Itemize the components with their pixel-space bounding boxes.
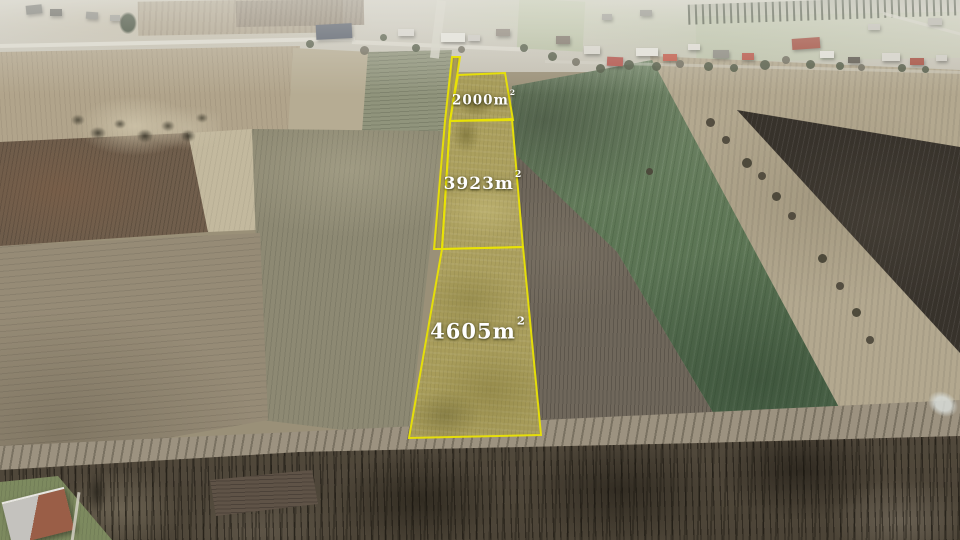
- parcel-3923-label: 3923m2: [444, 174, 523, 194]
- parcel-4605-label: 4605m2: [430, 319, 526, 344]
- area-unit: m: [494, 92, 509, 108]
- area-value: 4605: [430, 319, 492, 344]
- area-exponent: 2: [510, 88, 516, 97]
- aerial-photo: 2000m2 3923m2 4605m2: [0, 0, 960, 540]
- parcel-2000-label: 2000m2: [452, 92, 516, 109]
- area-unit: m: [493, 319, 516, 344]
- parcel-boundaries: [0, 0, 960, 540]
- area-value: 3923: [444, 174, 495, 194]
- area-unit: m: [495, 174, 514, 194]
- area-exponent: 2: [515, 169, 523, 180]
- area-exponent: 2: [517, 313, 526, 327]
- area-value: 2000: [452, 92, 494, 108]
